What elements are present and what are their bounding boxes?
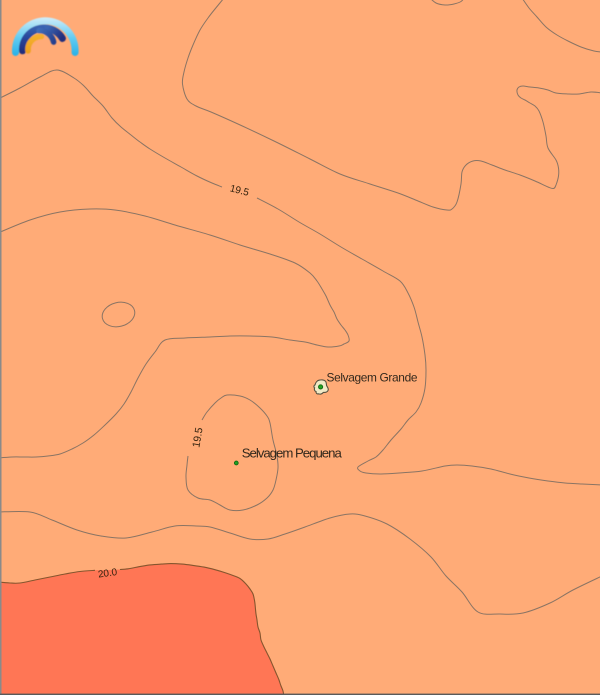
svg-text:Selvagem Pequena: Selvagem Pequena bbox=[242, 446, 343, 461]
svg-text:Selvagem Grande: Selvagem Grande bbox=[327, 371, 418, 385]
